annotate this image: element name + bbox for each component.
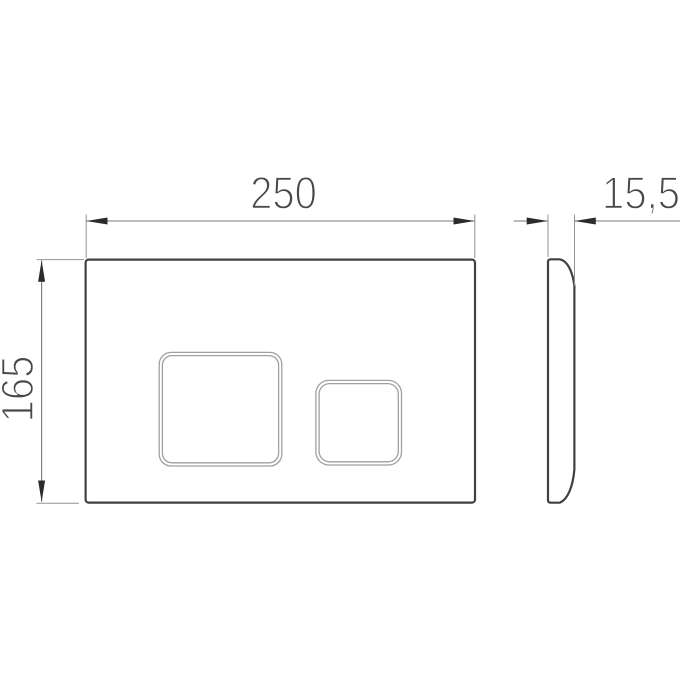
svg-text:15,5: 15,5	[602, 168, 680, 219]
svg-text:165: 165	[0, 356, 43, 423]
svg-text:250: 250	[250, 168, 317, 219]
